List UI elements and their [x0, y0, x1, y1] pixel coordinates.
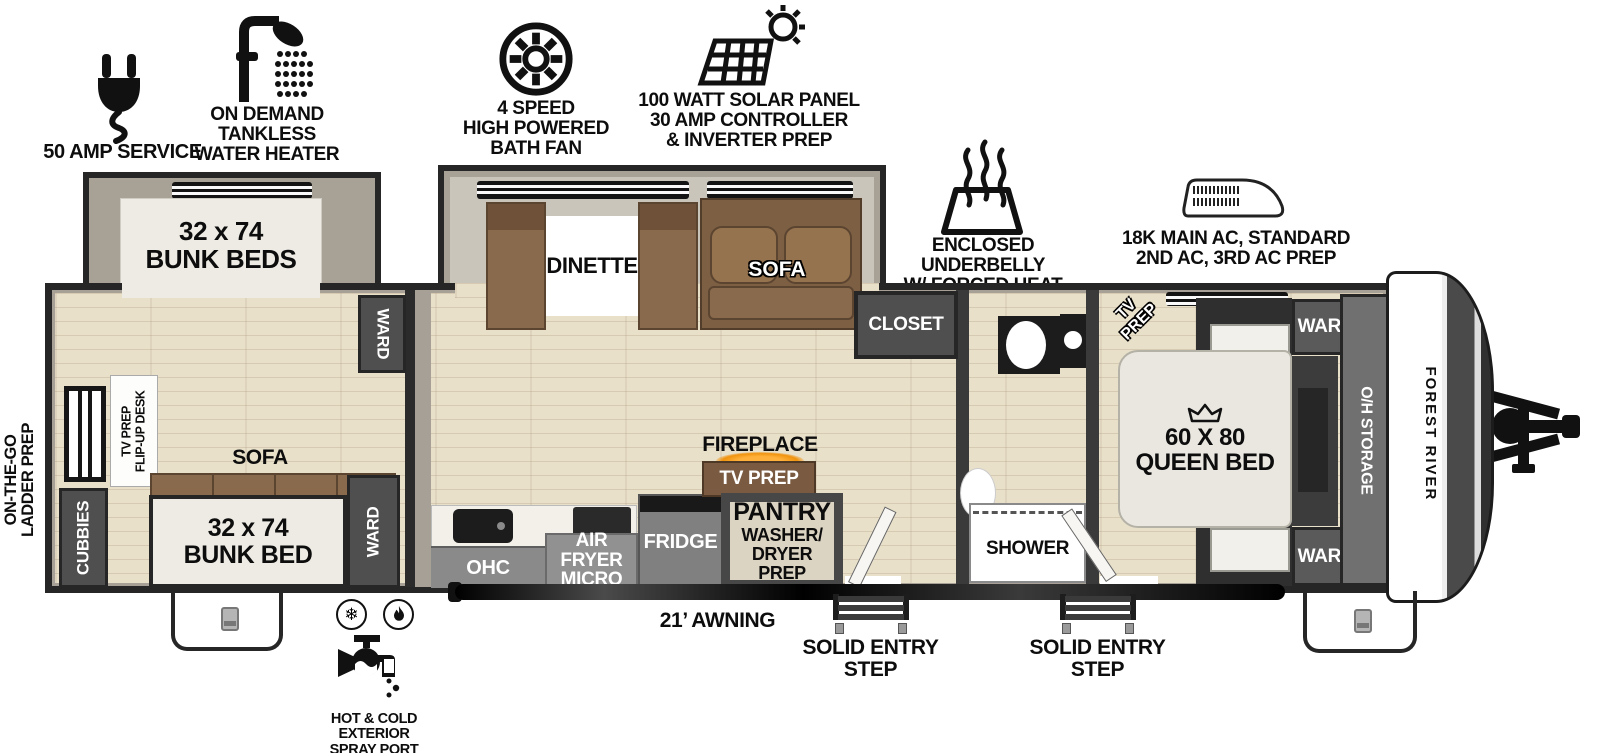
jack-post — [1518, 404, 1529, 466]
dinette-table: DINETTE — [546, 216, 638, 316]
hot-flame-icon — [383, 599, 414, 630]
sofa-main-label: SOFA — [722, 258, 832, 282]
roof-vent-icon — [477, 181, 689, 199]
wardrobe: WARD — [358, 295, 406, 373]
coupler — [1562, 415, 1580, 438]
fridge: FRIDGE — [638, 494, 723, 588]
amp-service-label: 50 AMP SERVICE — [35, 142, 210, 163]
headboard — [1288, 356, 1338, 526]
ac-unit-icon — [1180, 174, 1290, 226]
awning-label: 21’ AWNING — [645, 610, 790, 632]
water-heater-label: ON DEMAND TANKLESS WATER HEATER — [188, 105, 346, 165]
tv-prep-island: TV PREP — [702, 461, 816, 497]
closet: CLOSET — [854, 291, 958, 359]
baggage-door — [171, 591, 283, 651]
front-cap — [1386, 271, 1494, 603]
crown-icon — [1185, 403, 1225, 425]
entry-step-label: SOLID ENTRY STEP — [798, 637, 943, 682]
bath-fan-icon — [497, 20, 575, 98]
wardrobe: WARD — [347, 475, 400, 588]
jack-foot — [1512, 464, 1535, 473]
window — [64, 386, 106, 482]
overhead-cabinet: OHC — [431, 546, 545, 588]
slide-opening — [122, 283, 320, 298]
shower-head-icon — [232, 12, 318, 102]
solar-panel-icon — [693, 5, 805, 91]
bath-sink-cabinet — [1060, 314, 1086, 368]
wall-divider — [405, 290, 415, 587]
air-fryer-micro: AIR FRYER MICRO — [545, 533, 638, 588]
wall-divider-band — [415, 290, 431, 587]
forced-heat-icon — [936, 136, 1028, 236]
entry-step — [1060, 594, 1136, 632]
toilet — [1006, 321, 1046, 369]
rv-floorplan-diagram: 50 AMP SERVICE ON DEMAND TANKLESS WATER … — [0, 0, 1600, 753]
dinette-bench — [486, 202, 546, 330]
brand-label: FOREST RIVER — [1422, 334, 1438, 534]
door-handle — [1354, 609, 1372, 633]
roof-vent-icon — [172, 182, 312, 199]
ac-label: 18K MAIN AC, STANDARD 2ND AC, 3RD AC PRE… — [1100, 229, 1372, 269]
queen-bed: 60 X 80 QUEEN BED — [1118, 350, 1292, 528]
dinette-bench — [638, 202, 698, 330]
door-handle — [221, 607, 239, 631]
cold-icon: ❄ — [336, 599, 367, 630]
power-plug-icon — [88, 52, 150, 144]
sofa-label: SOFA — [205, 447, 315, 469]
bunk-beds-label: 32 x 74 BUNK BEDS — [120, 202, 322, 290]
pantry-washer-dryer: PANTRY WASHER/ DRYER PREP — [721, 493, 843, 589]
bath-fan-label: 4 SPEED HIGH POWERED BATH FAN — [450, 99, 622, 159]
solar-label: 100 WATT SOLAR PANEL 30 AMP CONTROLLER &… — [633, 91, 865, 151]
nightstand — [1210, 528, 1290, 572]
baggage-door — [1303, 591, 1417, 653]
spray-port-faucet-icon — [332, 629, 410, 703]
overhead-storage: O/H STORAGE — [1340, 294, 1390, 586]
spray-port-label: HOT & COLD EXTERIOR SPRAY PORT — [298, 712, 450, 753]
entry-step-label: SOLID ENTRY STEP — [1025, 637, 1170, 682]
roof-vent-icon — [707, 181, 853, 199]
cubbies: CUBBIES — [59, 488, 108, 588]
ladder-prep-label: ON-THE-GO LADDER PREP — [3, 405, 43, 555]
entry-step — [833, 594, 909, 632]
bunk-bed-bottom: 32 x 74 BUNK BED — [149, 495, 347, 588]
tv-prep-flip-up-desk: TV PREP FLIP-UP DESK — [110, 375, 158, 487]
kitchen-sink — [453, 509, 513, 543]
